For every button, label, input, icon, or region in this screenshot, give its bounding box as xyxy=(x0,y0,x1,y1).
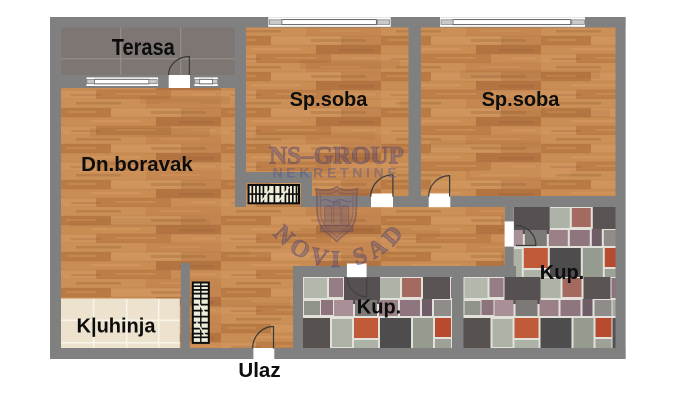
svg-text:Kup.: Kup. xyxy=(540,262,584,284)
svg-text:Sp.soba: Sp.soba xyxy=(482,89,561,111)
svg-text:K|uhinja: K|uhinja xyxy=(77,316,157,338)
svg-text:Sp.soba: Sp.soba xyxy=(290,89,369,111)
svg-text:NEKRETNINE: NEKRETNINE xyxy=(272,164,400,180)
svg-text:Kup.: Kup. xyxy=(357,297,401,319)
svg-text:Dn.boravak: Dn.boravak xyxy=(81,153,193,176)
svg-text:Ulaz: Ulaz xyxy=(238,359,280,382)
svg-text:Terasa: Terasa xyxy=(112,34,176,60)
